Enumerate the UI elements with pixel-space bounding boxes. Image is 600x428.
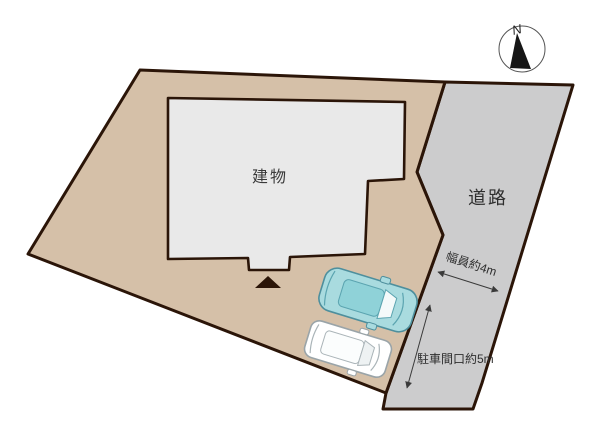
road-label: 道路: [468, 188, 508, 208]
site-plan-canvas: 建物 道路 幅員約4m: [0, 0, 600, 428]
parking-frontage-label: 駐車間口約5m: [417, 351, 494, 366]
building-label: 建物: [252, 168, 288, 186]
compass: N: [499, 21, 545, 72]
site-plan-svg: 建物 道路 幅員約4m: [0, 0, 600, 428]
